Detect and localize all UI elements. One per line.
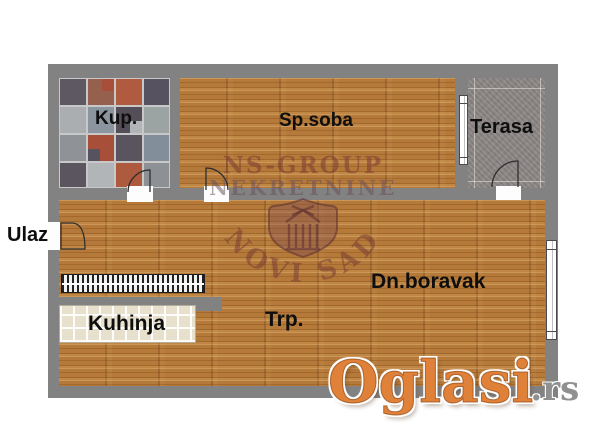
window-pane-line xyxy=(552,241,553,339)
window-sill-line xyxy=(460,157,467,158)
room-label-bedroom: Sp.soba xyxy=(279,110,353,132)
kitchen-bar-wall-step xyxy=(195,297,222,311)
terrace-tile-line xyxy=(468,88,545,89)
room-label-bathroom: Kup. xyxy=(95,108,137,130)
window-sill-line xyxy=(547,249,556,250)
floorplan-image: NS-GROUP NEKRETNINE NOVI SAD Kup. Sp.sob… xyxy=(0,0,606,445)
window-pane-line xyxy=(464,96,465,164)
terrace-door-threshold xyxy=(496,186,521,200)
room-label-kitchen: Kuhinja xyxy=(88,312,165,336)
terrace-tile-line xyxy=(540,78,541,188)
kitchen-bar-wall xyxy=(59,297,200,305)
room-label-terrace: Terasa xyxy=(470,116,533,139)
entrance-door-threshold xyxy=(47,222,60,250)
bathroom-floor xyxy=(59,78,170,188)
site-watermark: Oglasi.rs xyxy=(328,348,582,416)
site-watermark-suffix: .rs xyxy=(530,369,579,409)
site-watermark-brand: Oglasi xyxy=(328,348,533,416)
window-sill-line xyxy=(460,103,467,104)
room-label-living-room: Dn.boravak xyxy=(371,270,485,294)
wall-bathroom-bedroom xyxy=(170,78,180,188)
bedroom-door-threshold xyxy=(204,186,229,202)
window-icon xyxy=(459,95,468,165)
window-sill-line xyxy=(547,331,556,332)
terrace-tile-line xyxy=(468,181,545,182)
bathroom-door-threshold xyxy=(127,186,153,202)
kitchen-counter xyxy=(61,274,205,293)
wall-top xyxy=(48,64,558,78)
room-label-dining: Trp. xyxy=(265,308,304,332)
room-label-entrance: Ulaz xyxy=(7,224,48,247)
window-icon xyxy=(546,240,557,340)
bedroom-floor xyxy=(180,78,455,188)
